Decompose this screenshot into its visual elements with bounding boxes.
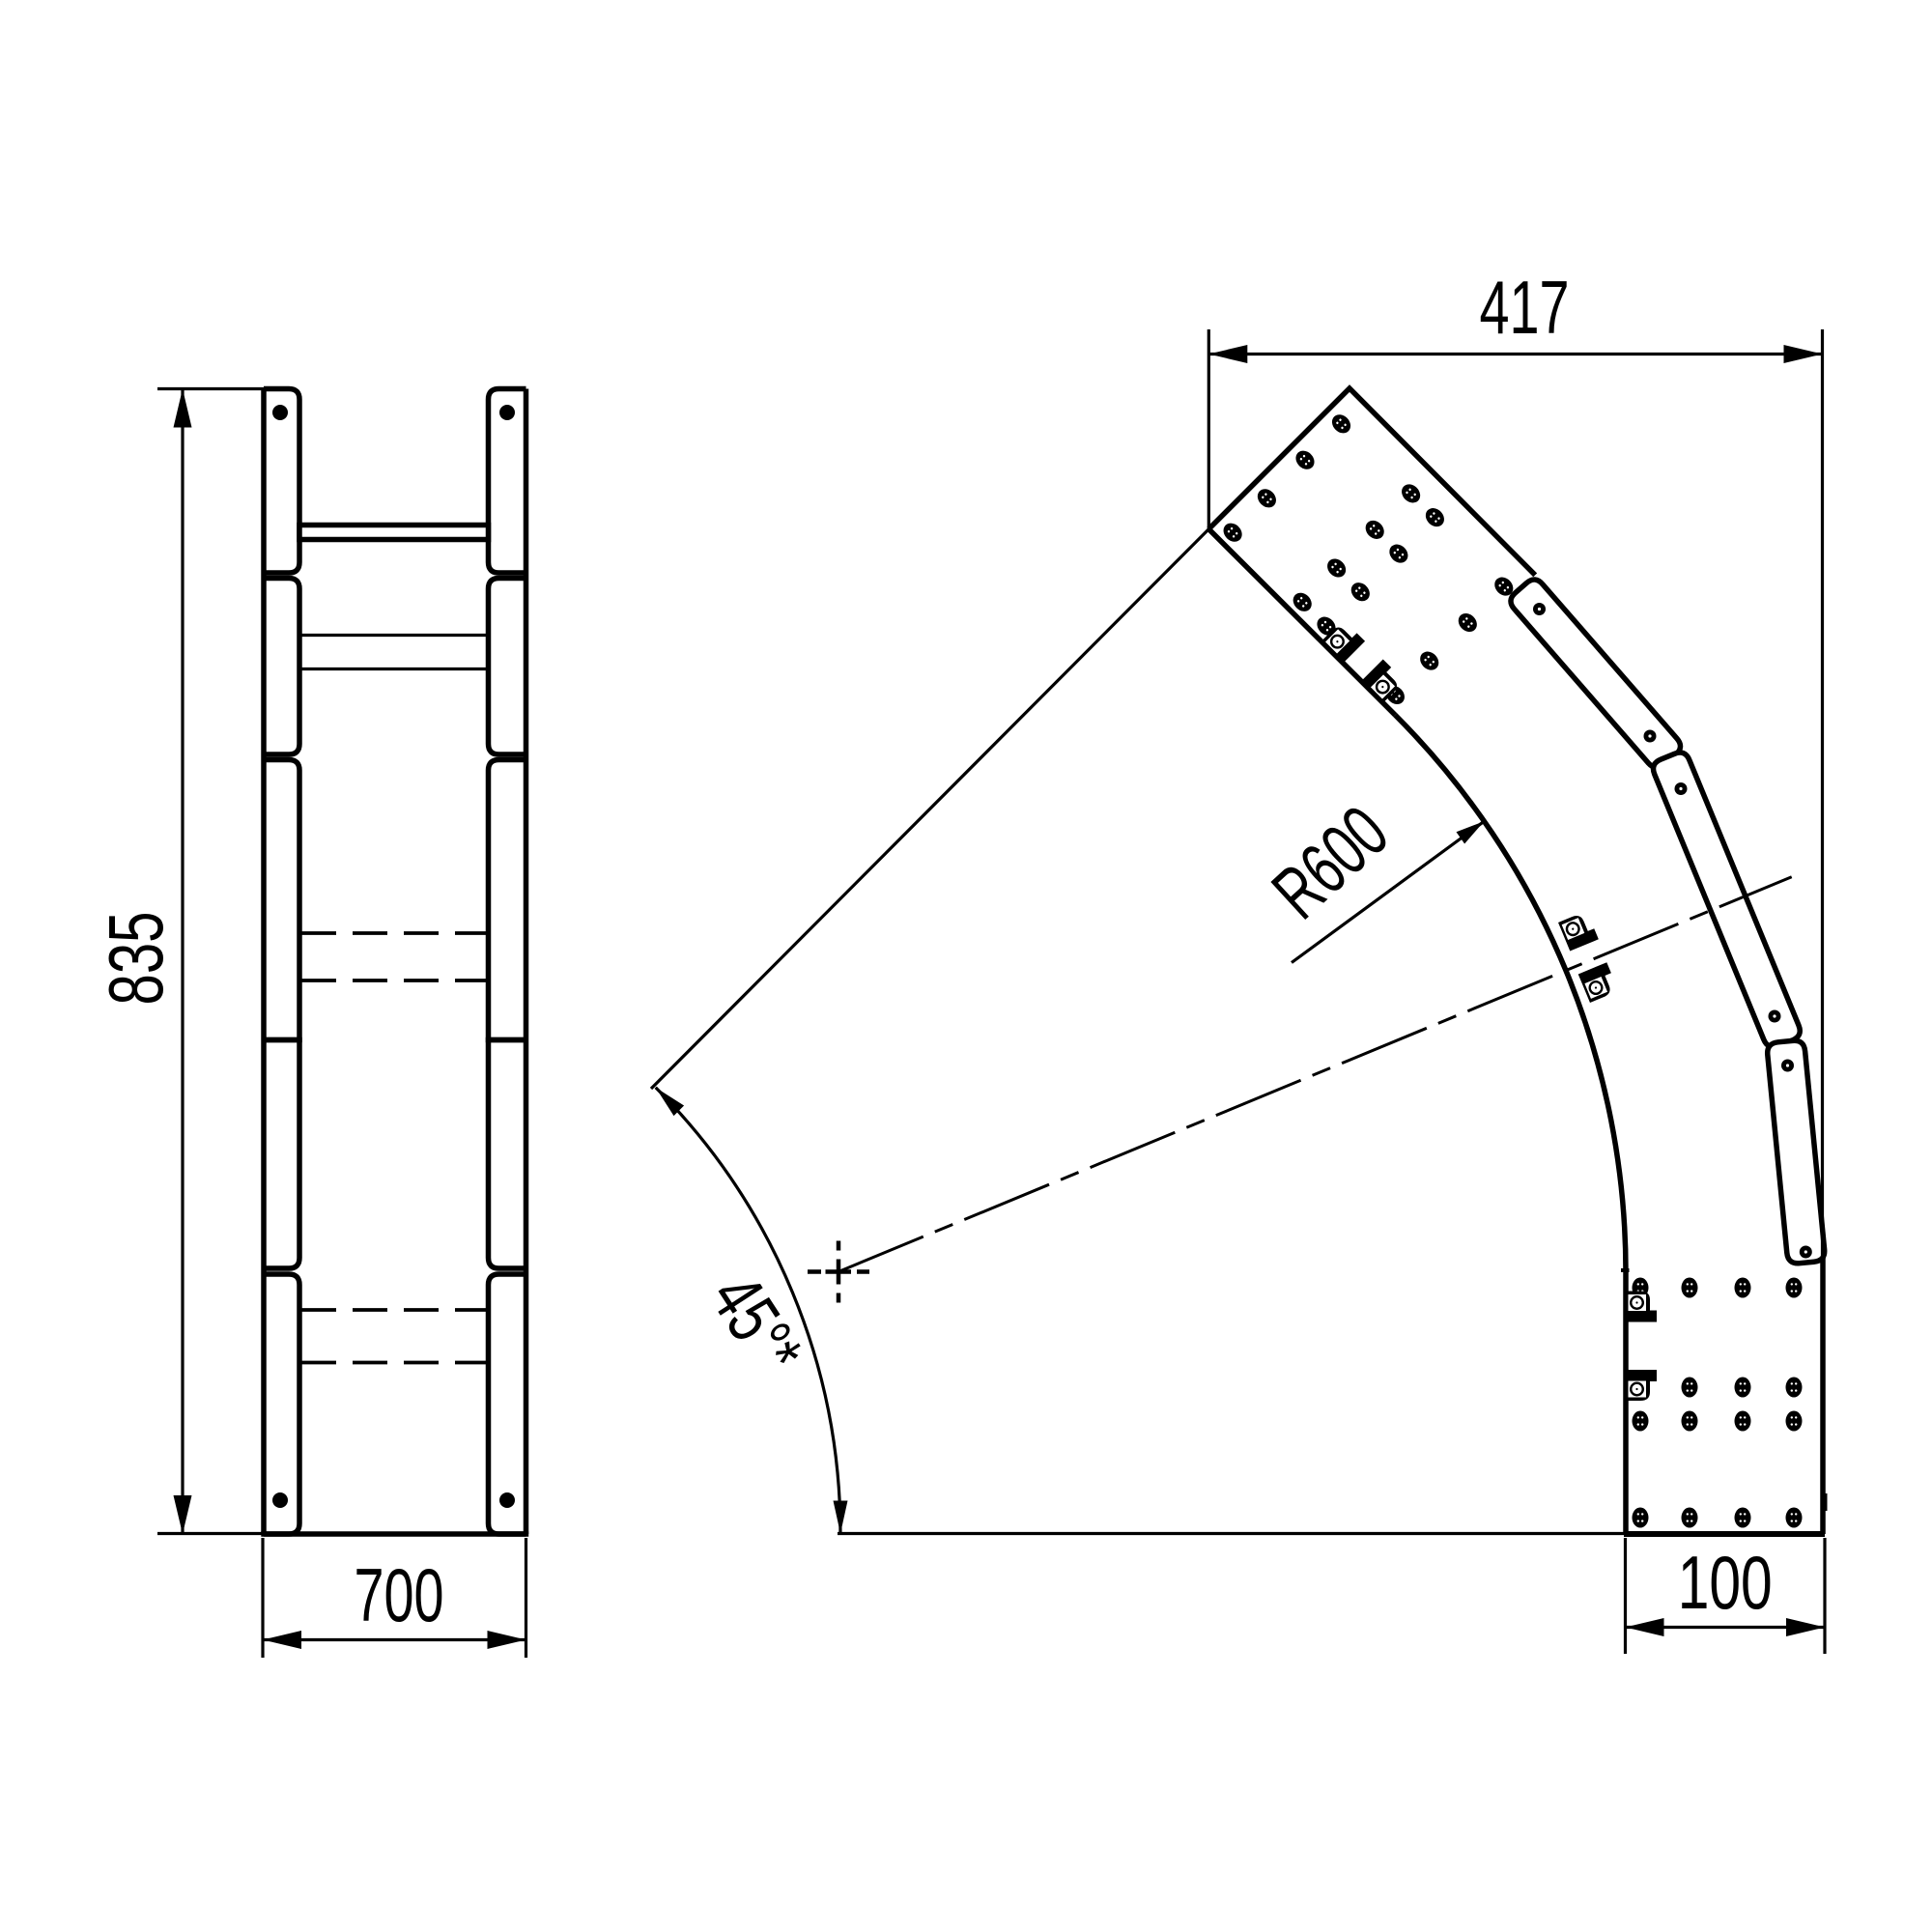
svg-text:835: 835 bbox=[93, 912, 179, 1006]
svg-text:417: 417 bbox=[1480, 265, 1570, 350]
svg-text:700: 700 bbox=[355, 1552, 444, 1637]
svg-text:100: 100 bbox=[1678, 1540, 1773, 1625]
